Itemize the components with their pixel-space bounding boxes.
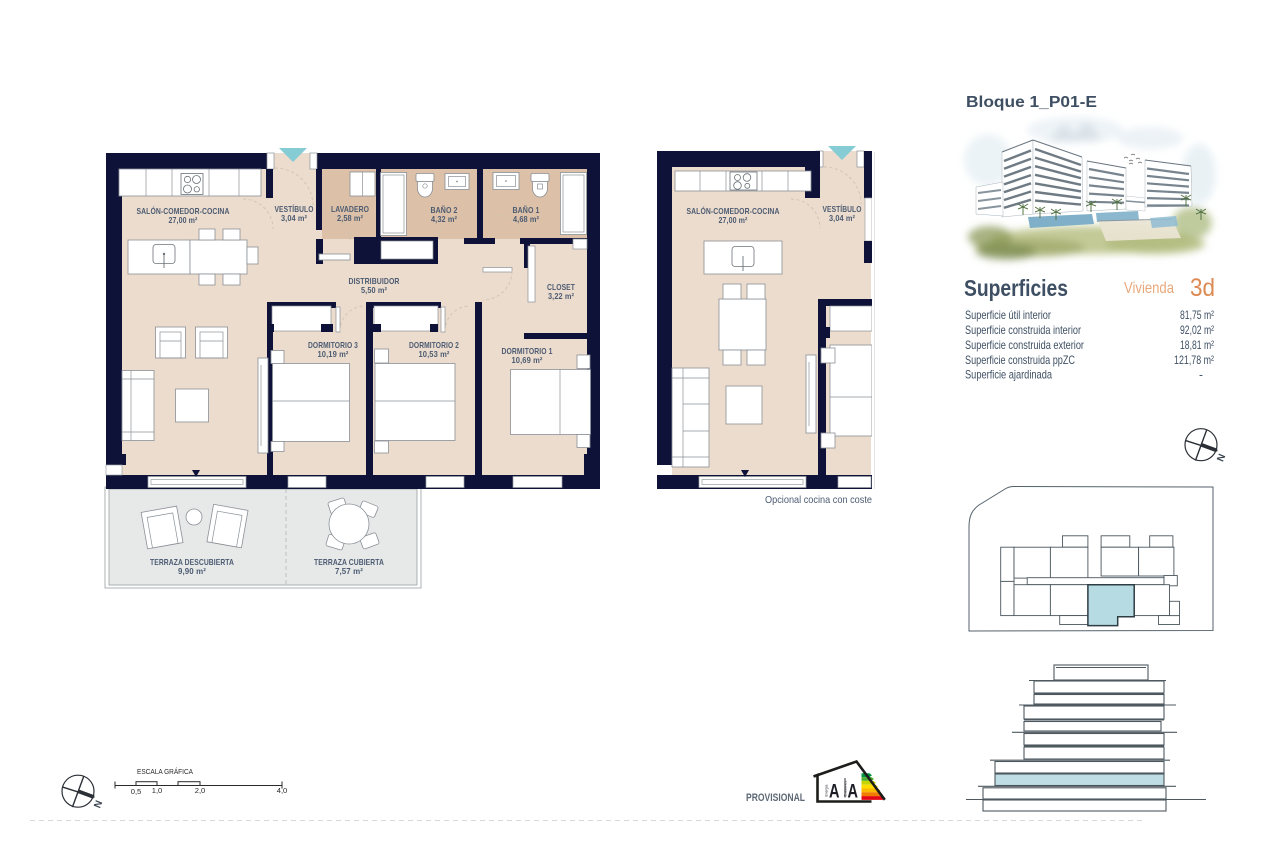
- svg-text:N: N: [91, 798, 104, 809]
- svg-text:18,81 m²: 18,81 m²: [1180, 338, 1214, 352]
- svg-text:10,19 m²: 10,19 m²: [318, 349, 349, 359]
- svg-text:10,69 m²: 10,69 m²: [512, 355, 543, 365]
- svg-text:4,32 m²: 4,32 m²: [431, 214, 457, 224]
- svg-text:27,00 m²: 27,00 m²: [169, 215, 198, 225]
- svg-text:2,0: 2,0: [195, 786, 206, 795]
- svg-text:Bloque 1_P01-E: Bloque 1_P01-E: [966, 94, 1097, 111]
- svg-text:3,22 m²: 3,22 m²: [548, 291, 574, 301]
- svg-text:2,58 m²: 2,58 m²: [337, 213, 363, 223]
- svg-text:Vivienda: Vivienda: [1124, 280, 1174, 297]
- svg-text:5,50 m²: 5,50 m²: [361, 285, 387, 295]
- svg-text:ESCALA GRÁFICA: ESCALA GRÁFICA: [137, 767, 194, 776]
- svg-text:3,04 m²: 3,04 m²: [281, 213, 307, 223]
- svg-text:3,04 m²: 3,04 m²: [829, 213, 855, 223]
- svg-text:Emisiones: Emisiones: [844, 781, 848, 797]
- svg-text:92,02 m²: 92,02 m²: [1180, 323, 1214, 337]
- svg-text:Superficie útil interior: Superficie útil interior: [965, 308, 1051, 322]
- svg-text:A: A: [848, 781, 859, 803]
- svg-text:10,53 m²: 10,53 m²: [419, 349, 450, 359]
- svg-text:3d: 3d: [1190, 274, 1215, 302]
- svg-text:81,75 m²: 81,75 m²: [1180, 308, 1214, 322]
- svg-text:Superficie construida ppZC: Superficie construida ppZC: [965, 353, 1075, 367]
- svg-text:7,57 m²: 7,57 m²: [335, 566, 363, 576]
- svg-text:Opcional cocina con coste: Opcional cocina con coste: [765, 494, 872, 506]
- svg-text:Energía: Energía: [825, 785, 829, 797]
- svg-text:121,78 m²: 121,78 m²: [1174, 353, 1214, 367]
- svg-text:Superficie construida interior: Superficie construida interior: [965, 323, 1081, 337]
- svg-text:A: A: [829, 781, 840, 803]
- svg-text:0,5: 0,5: [131, 787, 142, 796]
- svg-text:27,00 m²: 27,00 m²: [719, 215, 748, 225]
- svg-text:PROVISIONAL: PROVISIONAL: [746, 792, 805, 804]
- svg-text:9,90 m²: 9,90 m²: [178, 566, 206, 576]
- svg-text:Superficie ajardinada: Superficie ajardinada: [965, 368, 1052, 382]
- svg-text:4,68 m²: 4,68 m²: [513, 214, 539, 224]
- svg-text:N: N: [1214, 452, 1227, 463]
- svg-text:1,0: 1,0: [152, 786, 163, 795]
- svg-text:Superficies: Superficies: [964, 275, 1068, 301]
- svg-text:4,0: 4,0: [277, 786, 288, 795]
- svg-text:Superficie construida exterior: Superficie construida exterior: [965, 338, 1084, 352]
- svg-text:-: -: [1199, 368, 1203, 382]
